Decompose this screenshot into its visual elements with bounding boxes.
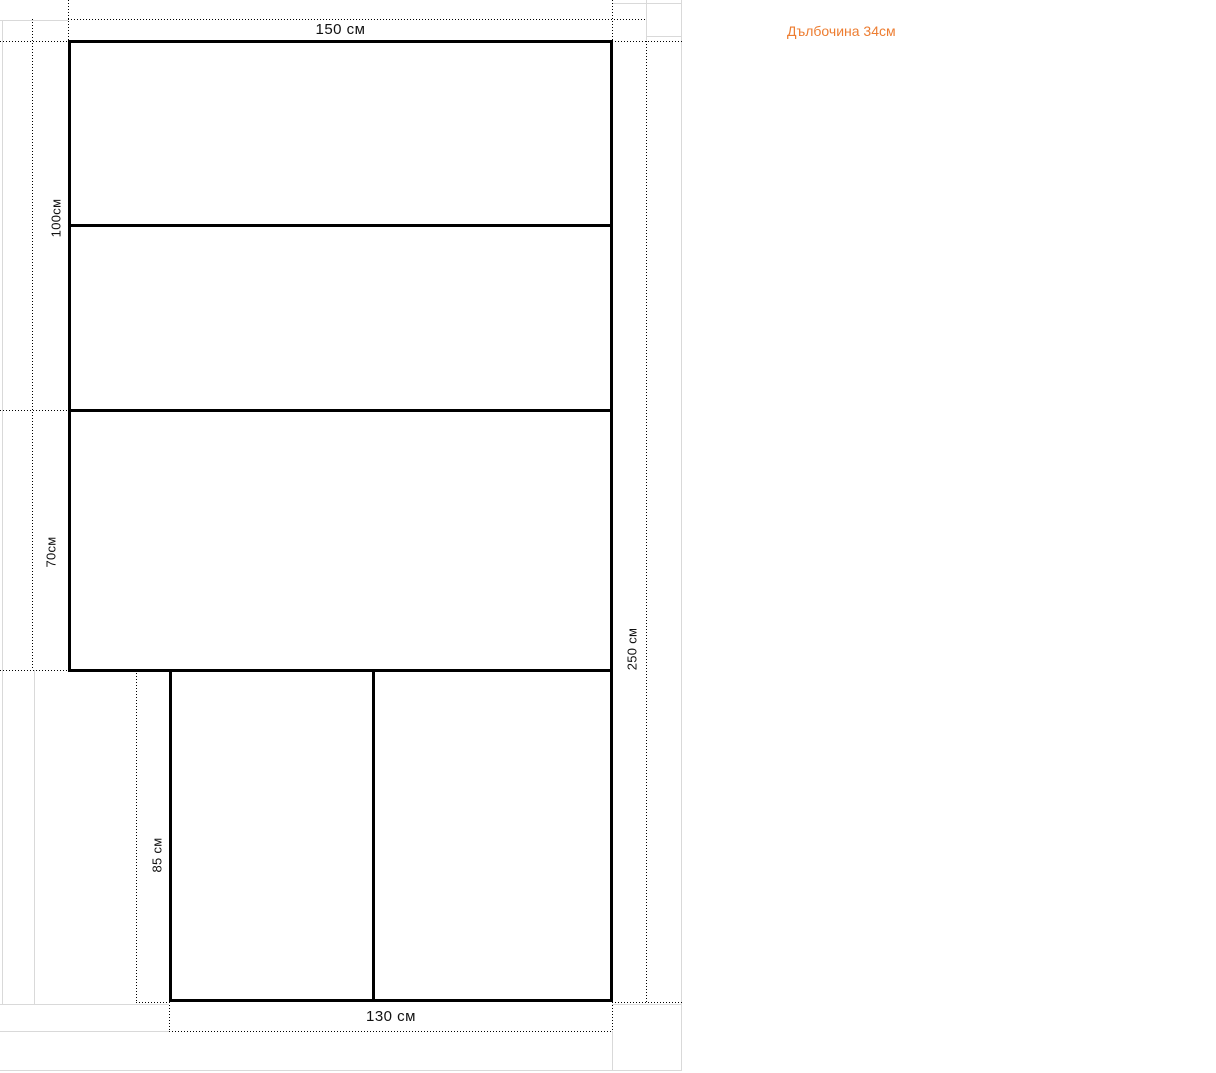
spreadsheet-canvas: 150 см 100см 70см 250 см 85 см 130 см Дъ… [0, 0, 1216, 1073]
dimension-extension-line [612, 1002, 682, 1003]
gridline [646, 36, 682, 37]
dimension-label-top-width[interactable]: 150 см [68, 21, 613, 38]
gridline [612, 3, 682, 4]
gridline [0, 1070, 682, 1071]
gridline [0, 20, 68, 21]
gridline [612, 1031, 613, 1070]
upper-cabinet-outline-rect[interactable] [68, 40, 613, 672]
dimension-extension-line [136, 670, 137, 1002]
gridline [646, 0, 647, 40]
dimension-extension-line [32, 19, 33, 670]
dimension-extension-line [0, 41, 68, 42]
gridline [681, 0, 682, 1070]
lower-cabinet-divider-line[interactable] [372, 669, 375, 1002]
dimension-extension-line [612, 41, 682, 42]
dimension-label-total-height[interactable]: 250 см [625, 628, 640, 671]
dimension-label-bottom-width[interactable]: 130 см [169, 1008, 613, 1025]
dimension-extension-line [0, 410, 68, 411]
gridline [0, 1004, 169, 1005]
lower-cabinet-outline-rect[interactable] [169, 669, 613, 1002]
dimension-extension-line [169, 1031, 612, 1032]
shelf-divider-line-2[interactable] [68, 409, 613, 412]
dimension-label-lower-left-height[interactable]: 70см [44, 536, 59, 567]
dimension-extension-line [0, 670, 68, 671]
gridline [612, 1004, 682, 1005]
dimension-label-upper-left-height[interactable]: 100см [49, 199, 64, 238]
gridline [2, 20, 3, 1004]
depth-note-text[interactable]: Дълбочина 34см [787, 23, 896, 39]
dimension-label-bottom-section-height[interactable]: 85 см [150, 837, 165, 872]
dimension-extension-line [136, 1002, 169, 1003]
dimension-extension-line [68, 19, 646, 20]
dimension-extension-line [646, 41, 647, 1002]
gridline [34, 670, 35, 1004]
gridline [0, 1031, 169, 1032]
shelf-divider-line-1[interactable] [68, 224, 613, 227]
